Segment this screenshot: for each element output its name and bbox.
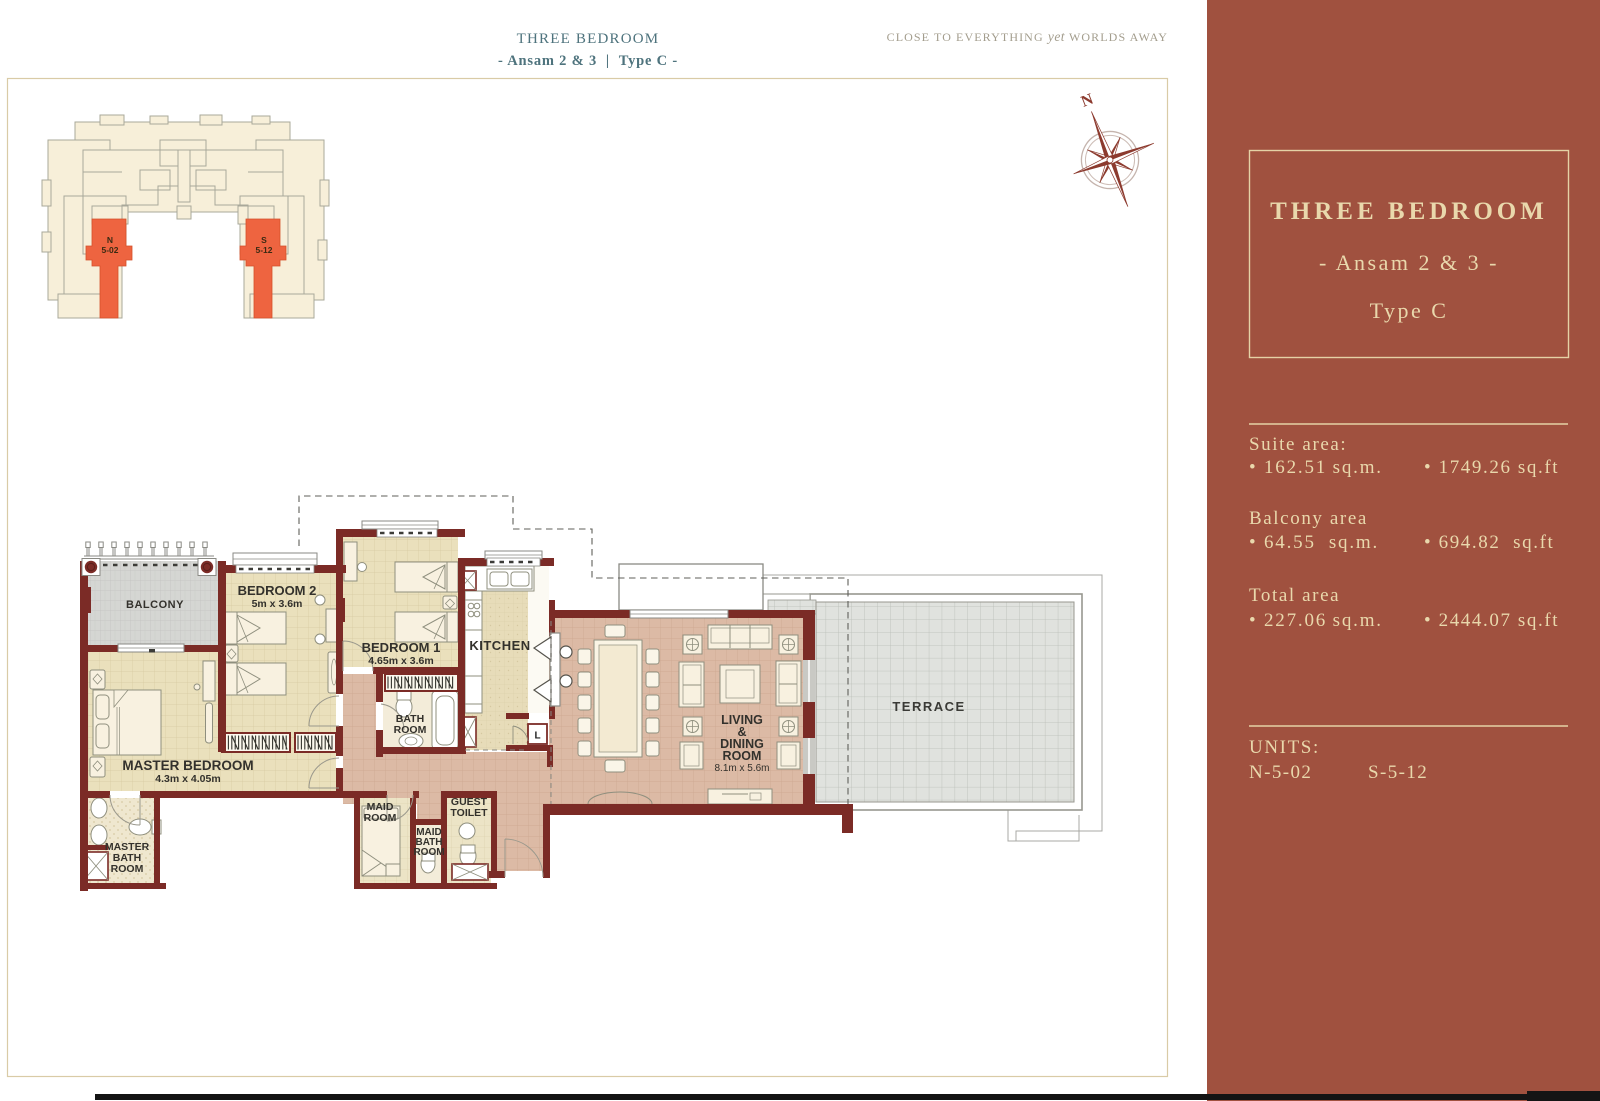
svg-text:N: N — [107, 235, 113, 245]
svg-text:BEDROOM 1: BEDROOM 1 — [362, 640, 441, 655]
svg-text:TERRACE: TERRACE — [892, 699, 965, 714]
svg-text:THREE BEDROOM: THREE BEDROOM — [1270, 198, 1548, 225]
svg-text:Suite area:: Suite area: — [1249, 434, 1347, 455]
svg-text:- Ansam 2 & 3 -: - Ansam 2 & 3 - — [1319, 250, 1499, 275]
svg-text:CLOSE TO EVERYTHING yet WORLDS: CLOSE TO EVERYTHING yet WORLDS AWAY — [887, 29, 1168, 44]
svg-text:4.3m x 4.05m: 4.3m x 4.05m — [155, 773, 220, 785]
svg-text:BEDROOM 2: BEDROOM 2 — [238, 583, 317, 598]
svg-text:• 2444.07 sq.ft: • 2444.07 sq.ft — [1424, 610, 1559, 631]
svg-text:TOILET: TOILET — [450, 807, 488, 819]
svg-text:Balcony area: Balcony area — [1249, 508, 1368, 529]
svg-text:4.65m x 3.6m: 4.65m x 3.6m — [368, 655, 433, 667]
svg-text:UNITS:: UNITS: — [1249, 737, 1320, 758]
svg-text:ROOM: ROOM — [723, 749, 762, 763]
svg-text:S: S — [261, 235, 267, 245]
svg-text:THREE BEDROOM: THREE BEDROOM — [517, 31, 660, 47]
svg-text:- Ansam 2 & 3 | Type C -: - Ansam 2 & 3 | Type C - — [498, 53, 678, 69]
svg-text:• 1749.26 sq.ft: • 1749.26 sq.ft — [1424, 457, 1559, 478]
svg-text:ROOM: ROOM — [364, 812, 397, 824]
svg-text:5m x 3.6m: 5m x 3.6m — [252, 598, 303, 610]
svg-text:• 64.55 sq.m.: • 64.55 sq.m. — [1249, 532, 1379, 553]
svg-text:ROOM: ROOM — [394, 724, 427, 736]
svg-text:5-02: 5-02 — [101, 245, 118, 255]
svg-text:8.1m x 5.6m: 8.1m x 5.6m — [714, 763, 769, 774]
svg-text:5-12: 5-12 — [255, 245, 272, 255]
svg-text:• 694.82 sq.ft: • 694.82 sq.ft — [1424, 532, 1554, 553]
svg-text:L: L — [534, 731, 540, 742]
svg-text:KITCHEN: KITCHEN — [469, 638, 530, 653]
svg-text:Type C: Type C — [1370, 298, 1449, 323]
svg-text:Total area: Total area — [1249, 585, 1340, 606]
svg-text:BALCONY: BALCONY — [126, 599, 184, 611]
svg-text:N-5-02: N-5-02 — [1249, 762, 1312, 783]
svg-text:• 227.06 sq.m.: • 227.06 sq.m. — [1249, 610, 1383, 631]
svg-text:ROOM: ROOM — [111, 863, 144, 875]
svg-text:• 162.51 sq.m.: • 162.51 sq.m. — [1249, 457, 1383, 478]
svg-text:MASTER BEDROOM: MASTER BEDROOM — [122, 758, 253, 773]
svg-text:ROOM: ROOM — [413, 847, 444, 858]
svg-text:S-5-12: S-5-12 — [1368, 762, 1428, 783]
